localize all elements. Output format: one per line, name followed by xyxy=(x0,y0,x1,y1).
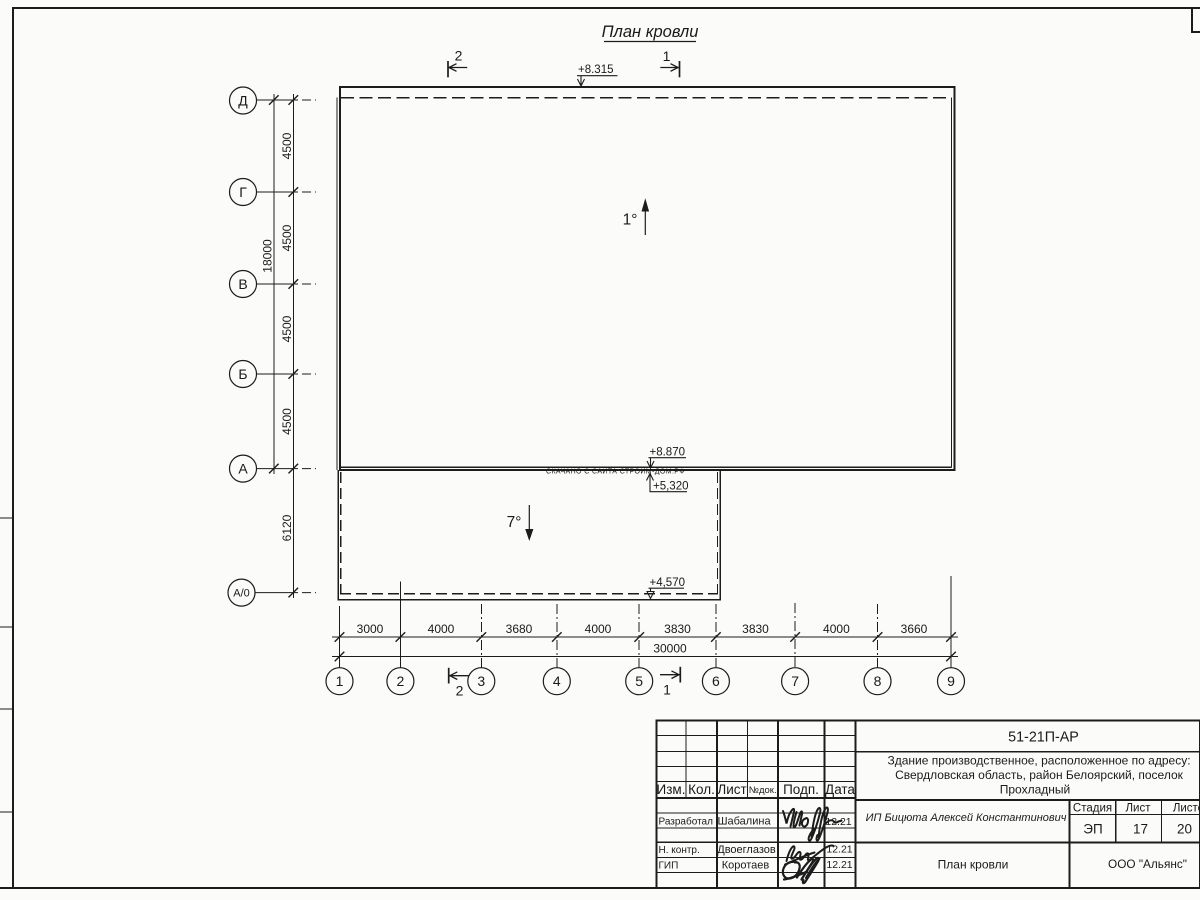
svg-text:Здание производственное, распо: Здание производственное, расположенное п… xyxy=(887,754,1190,768)
svg-text:17: 17 xyxy=(1133,822,1148,837)
svg-text:ЭП: ЭП xyxy=(1083,822,1102,837)
svg-text:А: А xyxy=(238,461,248,477)
svg-text:Изм.: Изм. xyxy=(657,782,686,797)
svg-text:Прохладный: Прохладный xyxy=(1000,783,1070,797)
svg-text:8: 8 xyxy=(874,673,882,689)
svg-text:№док.: №док. xyxy=(749,785,777,796)
svg-text:3000: 3000 xyxy=(357,622,384,636)
svg-text:7°: 7° xyxy=(507,514,522,531)
svg-text:7: 7 xyxy=(791,673,799,689)
svg-text:Н. контр.: Н. контр. xyxy=(659,845,700,856)
svg-text:ИП Бицюта Алексей Константинов: ИП Бицюта Алексей Константинович xyxy=(866,812,1067,824)
svg-text:4000: 4000 xyxy=(823,622,850,636)
svg-text:Подп.: Подп. xyxy=(783,782,819,797)
svg-text:4500: 4500 xyxy=(280,132,294,159)
svg-text:ГИП: ГИП xyxy=(659,861,679,872)
svg-text:+5,320: +5,320 xyxy=(653,481,689,493)
svg-text:Лист: Лист xyxy=(717,782,746,797)
svg-text:Двоеглазов: Двоеглазов xyxy=(717,844,776,856)
svg-text:3680: 3680 xyxy=(506,622,533,636)
svg-text:12.21: 12.21 xyxy=(826,859,852,871)
svg-text:Б: Б xyxy=(238,366,247,382)
svg-text:Г: Г xyxy=(239,184,247,200)
svg-text:5: 5 xyxy=(635,673,643,689)
svg-text:4500: 4500 xyxy=(280,315,294,342)
svg-text:2: 2 xyxy=(455,47,463,63)
svg-text:А/0: А/0 xyxy=(233,588,250,600)
svg-text:Коротаев: Коротаев xyxy=(722,860,770,872)
svg-text:План кровли: План кровли xyxy=(938,858,1009,872)
svg-text:3830: 3830 xyxy=(742,622,769,636)
svg-text:2: 2 xyxy=(397,673,405,689)
svg-text:+4,570: +4,570 xyxy=(650,577,686,589)
svg-text:Дата: Дата xyxy=(825,782,855,797)
svg-text:1°: 1° xyxy=(623,212,638,229)
svg-text:Лист: Лист xyxy=(1126,802,1152,814)
svg-text:Д: Д xyxy=(238,93,248,109)
svg-text:3660: 3660 xyxy=(901,622,928,636)
svg-text:Шабалина: Шабалина xyxy=(717,816,771,828)
svg-text:4000: 4000 xyxy=(585,622,612,636)
svg-text:1: 1 xyxy=(336,673,344,689)
svg-text:+8.315: +8.315 xyxy=(578,64,614,76)
svg-text:2: 2 xyxy=(456,683,464,699)
svg-text:1: 1 xyxy=(663,682,671,698)
svg-text:9: 9 xyxy=(947,673,955,689)
svg-text:Стадия: Стадия xyxy=(1073,802,1112,814)
svg-text:6: 6 xyxy=(712,673,720,689)
svg-text:4500: 4500 xyxy=(280,408,294,435)
svg-text:1: 1 xyxy=(663,48,671,64)
svg-text:18000: 18000 xyxy=(261,239,275,273)
svg-text:Свердловская область, район Бе: Свердловская область, район Белоярский, … xyxy=(895,768,1184,782)
svg-text:3830: 3830 xyxy=(664,622,691,636)
svg-text:30000: 30000 xyxy=(653,642,687,656)
svg-text:Листов: Листов xyxy=(1173,802,1200,814)
svg-text:6120: 6120 xyxy=(280,514,294,541)
svg-text:СКАЧАНО С САЙТА СТРОИМ-ДОМ.РФ: СКАЧАНО С САЙТА СТРОИМ-ДОМ.РФ xyxy=(546,467,685,476)
svg-text:План кровли: План кровли xyxy=(602,23,699,41)
svg-text:ООО "Альянс": ООО "Альянс" xyxy=(1108,857,1187,871)
svg-text:4000: 4000 xyxy=(428,622,455,636)
svg-text:4: 4 xyxy=(553,673,561,689)
svg-text:Разработал: Разработал xyxy=(659,816,714,828)
svg-text:В: В xyxy=(238,276,247,292)
svg-text:Кол.: Кол. xyxy=(688,782,715,797)
svg-text:51-21П-АР: 51-21П-АР xyxy=(1008,730,1079,746)
svg-text:3: 3 xyxy=(477,673,485,689)
svg-text:+8.870: +8.870 xyxy=(650,447,686,459)
svg-text:20: 20 xyxy=(1177,822,1192,837)
svg-text:4500: 4500 xyxy=(280,224,294,251)
